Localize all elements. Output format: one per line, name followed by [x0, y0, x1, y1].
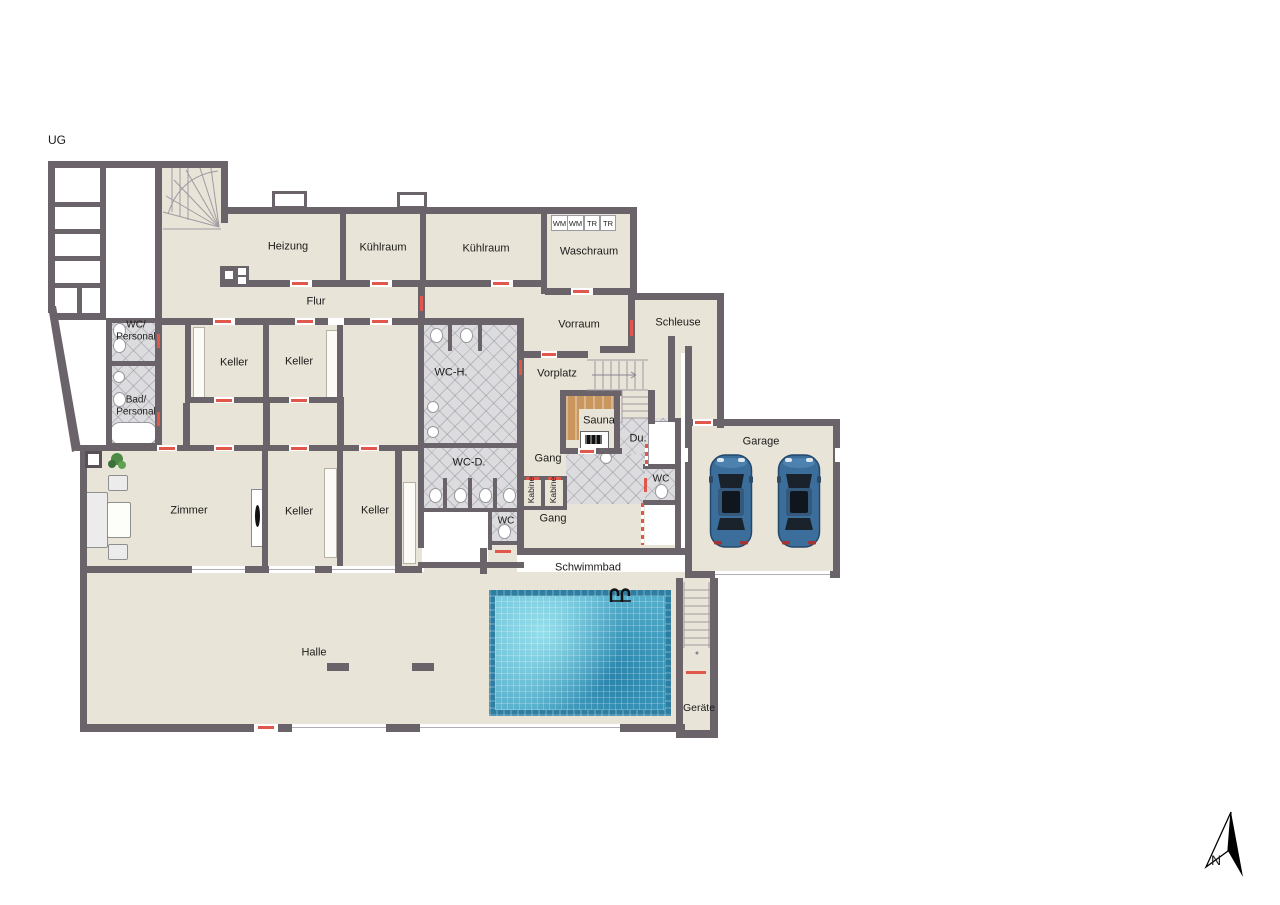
wall [480, 548, 487, 574]
north-label: N [1211, 852, 1221, 868]
wall [418, 562, 524, 568]
sink [427, 426, 439, 438]
wall [424, 443, 517, 448]
wall-niche [835, 448, 840, 462]
wall [263, 325, 269, 401]
appliance-label: WM [569, 219, 582, 228]
floor-garagecorridor [692, 353, 717, 428]
appliance-label: TR [603, 219, 613, 228]
wall [54, 229, 100, 234]
door-marker [420, 296, 423, 311]
room-label-wc: WC [498, 515, 515, 527]
door-marker [695, 421, 711, 424]
door-marker [157, 334, 160, 348]
wall [468, 478, 472, 508]
sliding-door [332, 566, 395, 573]
wall [676, 578, 683, 738]
wall [185, 325, 191, 401]
sliding-door [269, 566, 315, 573]
room-label-vorplatz: Vorplatz [537, 368, 577, 381]
wall [493, 478, 497, 508]
door-marker [493, 282, 509, 285]
wall [337, 403, 344, 451]
electric-box [238, 277, 246, 284]
door-opening [328, 318, 344, 325]
dryer: TR [600, 215, 616, 231]
wall [155, 168, 162, 448]
washing-machine: WM [567, 215, 584, 231]
room-label-gang: Gang [540, 513, 567, 526]
armchair [108, 544, 128, 560]
room-label-wc: WC [653, 473, 670, 485]
door-marker [686, 671, 706, 674]
door-marker [361, 447, 377, 450]
door-marker [542, 353, 556, 356]
floor-label: UG [48, 134, 66, 148]
column [327, 663, 349, 671]
door-marker [644, 478, 647, 492]
wall [48, 161, 228, 168]
wall [676, 730, 718, 738]
room-label-kabine: Kabine [549, 477, 559, 503]
room-label-garage: Garage [743, 436, 780, 449]
wall [448, 325, 452, 351]
door-handle [255, 505, 260, 527]
door-marker [495, 550, 511, 553]
sink [427, 401, 439, 413]
wall [340, 214, 346, 281]
bathtub [110, 422, 157, 445]
door-marker [519, 360, 522, 375]
shower-screen [645, 444, 648, 466]
wall [630, 207, 637, 295]
sink [113, 371, 125, 383]
wall [418, 325, 424, 548]
wall [517, 548, 685, 555]
door-marker [292, 282, 308, 285]
swimming-pool [495, 596, 665, 710]
room-label-bad-personal: Bad/ Personal [116, 395, 155, 418]
door-marker [297, 320, 313, 323]
appliance-label: TR [587, 219, 597, 228]
wall [524, 506, 567, 510]
shelf [324, 468, 337, 558]
room-label-keller: Keller [285, 356, 313, 369]
wall [420, 214, 426, 281]
wall [517, 325, 524, 548]
wall [492, 541, 521, 545]
room-label-keller: Keller [361, 505, 389, 518]
wall [183, 403, 190, 451]
room-label-halle: Halle [301, 647, 326, 660]
door-marker [291, 447, 307, 450]
room-label-wc-damen: WC-D. [453, 457, 486, 470]
wall [563, 478, 567, 508]
wall [675, 418, 681, 548]
wall [263, 403, 270, 451]
door-marker [580, 450, 594, 453]
room-label-keller: Keller [220, 357, 248, 370]
toilet [460, 328, 473, 343]
shelf [403, 482, 416, 564]
floor-garage [692, 426, 833, 578]
room-label-vorraum: Vorraum [558, 319, 600, 332]
appliance-label: WM [553, 219, 566, 228]
washing-machine: WM [551, 215, 568, 231]
wall [424, 508, 524, 512]
room-label-flur: Flur [307, 296, 326, 309]
wall [54, 202, 100, 207]
column-marker [85, 451, 102, 468]
armchair [108, 475, 128, 491]
wall [54, 313, 106, 320]
toilet [503, 488, 516, 503]
shower-screen [641, 503, 644, 545]
sauna-bench-left [566, 396, 579, 440]
sauna-heater-icon [585, 435, 602, 444]
lightwell [106, 168, 155, 318]
toilet [430, 328, 443, 343]
dryer: TR [584, 215, 600, 231]
wall [478, 325, 482, 351]
wall [106, 361, 158, 366]
electric-box [238, 268, 246, 275]
window [420, 724, 620, 732]
coffee-table [107, 502, 131, 538]
wall [106, 318, 112, 450]
wall [560, 390, 566, 454]
room-label-sauna: Sauna [583, 415, 615, 428]
wall [262, 451, 268, 568]
room-label-kuehlraum: Kühlraum [359, 242, 406, 255]
toilet [454, 488, 467, 503]
wall [100, 168, 106, 320]
room-label-schleuse: Schleuse [655, 317, 700, 330]
wall [80, 451, 87, 731]
room-label-geraete: Geräte [683, 702, 715, 714]
column [412, 663, 434, 671]
room-label-heizung: Heizung [268, 241, 308, 254]
door-marker [372, 282, 388, 285]
door-marker [216, 399, 232, 402]
wall [643, 500, 675, 505]
wall [443, 478, 447, 508]
wall [560, 390, 622, 396]
light-shaft [397, 192, 427, 209]
diagonal-wall [48, 306, 81, 452]
shelf [193, 327, 205, 399]
window [292, 724, 386, 732]
wall [600, 346, 635, 353]
room-label-wc-personal: WC/ Personal [116, 320, 155, 343]
white-room-technik-2 [645, 505, 675, 545]
light-shaft [272, 191, 307, 209]
wall [48, 168, 55, 313]
room-label-gang: Gang [535, 453, 562, 466]
wall [717, 293, 724, 428]
toilet [655, 484, 668, 499]
shower-tray [648, 421, 676, 469]
door-marker [258, 726, 274, 729]
wall [541, 478, 545, 508]
wall [337, 325, 343, 407]
room-label-schwimmbad: Schwimmbad [555, 562, 621, 575]
wall [337, 451, 343, 568]
room-label-zimmer: Zimmer [170, 505, 207, 518]
room-label-waschraum: Waschraum [560, 246, 618, 259]
door-marker [573, 290, 589, 293]
toilet [479, 488, 492, 503]
wall [668, 336, 675, 422]
door-marker [630, 320, 633, 336]
white-room-technik [424, 512, 488, 562]
door-marker [216, 447, 232, 450]
toilet [429, 488, 442, 503]
door-marker [291, 399, 307, 402]
wall [685, 346, 692, 426]
electric-box [225, 271, 233, 279]
door-marker [215, 320, 231, 323]
wall [648, 390, 655, 424]
room-label-keller: Keller [285, 506, 313, 519]
wall [54, 256, 100, 261]
door-marker [157, 412, 160, 426]
wall [395, 451, 402, 568]
room-label-dusche: Du. [629, 433, 646, 446]
room-label-kuehlraum: Kühlraum [462, 243, 509, 256]
door-marker [372, 320, 388, 323]
room-label-wc-herren: WC-H. [435, 367, 468, 380]
garage-door [715, 571, 830, 578]
floorplan-ug: WM WM TR TR [0, 0, 1280, 905]
wall [628, 293, 724, 300]
door-marker [159, 447, 175, 450]
room-label-kabine: Kabine [527, 477, 537, 503]
wall-niche [683, 448, 688, 462]
sliding-door [192, 566, 245, 573]
